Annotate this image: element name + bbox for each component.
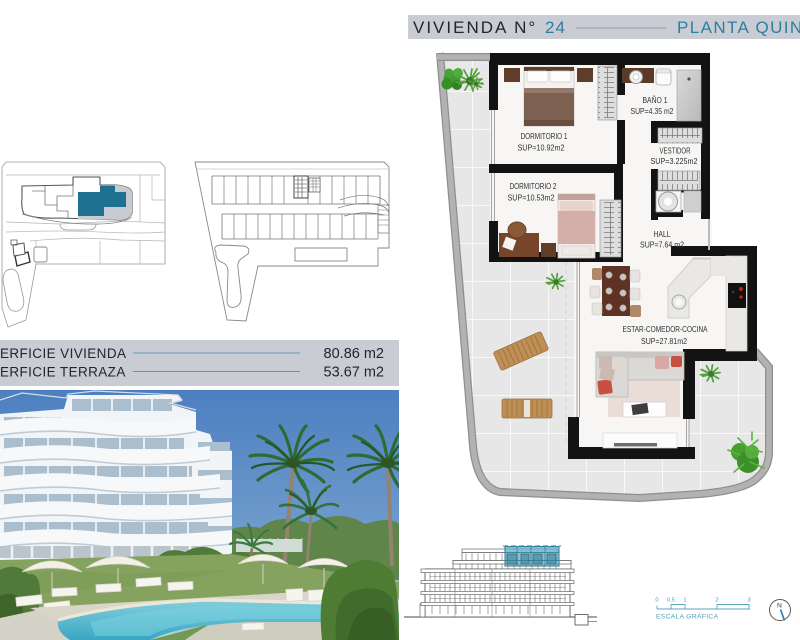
svg-text:SUPERFICIE VIVIENDA: SUPERFICIE VIVIENDA	[0, 346, 126, 361]
svg-text:0.5: 0.5	[667, 598, 675, 604]
svg-text:VESTIDOR: VESTIDOR	[660, 147, 691, 156]
svg-text:SUP=10.92m2: SUP=10.92m2	[518, 144, 565, 153]
svg-text:SUP=27.81m2: SUP=27.81m2	[641, 337, 687, 346]
svg-text:2: 2	[715, 598, 718, 604]
svg-text:3: 3	[747, 598, 750, 604]
svg-text:BAÑO 1: BAÑO 1	[643, 96, 668, 105]
svg-text:VIVIENDA N°: VIVIENDA N°	[413, 18, 537, 37]
svg-text:24: 24	[545, 18, 566, 37]
svg-text:SUP=3.225m2: SUP=3.225m2	[651, 157, 698, 166]
svg-text:ESCALA GRÁFICA: ESCALA GRÁFICA	[656, 612, 719, 621]
svg-text:53.67 m2: 53.67 m2	[324, 365, 384, 381]
svg-text:SUP=4.35 m2: SUP=4.35 m2	[631, 107, 674, 116]
svg-text:ESTAR-COMEDOR-COCINA: ESTAR-COMEDOR-COCINA	[623, 325, 709, 334]
svg-text:HALL: HALL	[654, 230, 671, 239]
svg-text:80.86 m2: 80.86 m2	[324, 346, 384, 362]
svg-text:DORMITORIO 1: DORMITORIO 1	[521, 132, 568, 141]
svg-text:PLANTA QUINTA: PLANTA QUINTA	[677, 18, 800, 37]
svg-text:DORMITORIO 2: DORMITORIO 2	[510, 182, 557, 191]
svg-text:SUP=7.64 m2: SUP=7.64 m2	[640, 241, 684, 250]
svg-text:N: N	[777, 603, 782, 610]
svg-text:SUP=10.53m2: SUP=10.53m2	[508, 194, 555, 203]
svg-text:SUPERFICIE TERRAZA: SUPERFICIE TERRAZA	[0, 365, 126, 380]
svg-text:0: 0	[655, 598, 658, 604]
svg-text:1: 1	[683, 598, 686, 604]
